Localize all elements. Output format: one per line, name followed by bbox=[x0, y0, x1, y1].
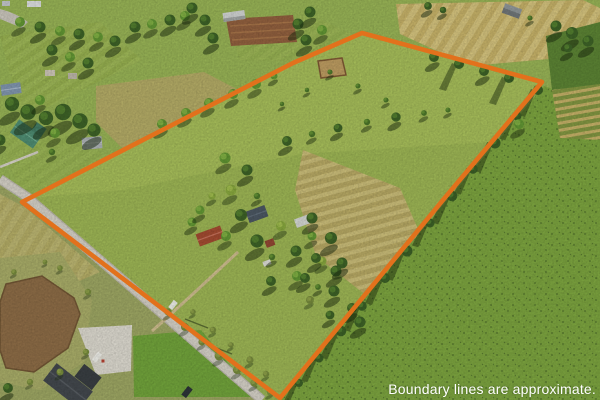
screenshot-root: Boundary lines are approximate. bbox=[0, 0, 600, 400]
aerial-photo bbox=[0, 0, 600, 400]
